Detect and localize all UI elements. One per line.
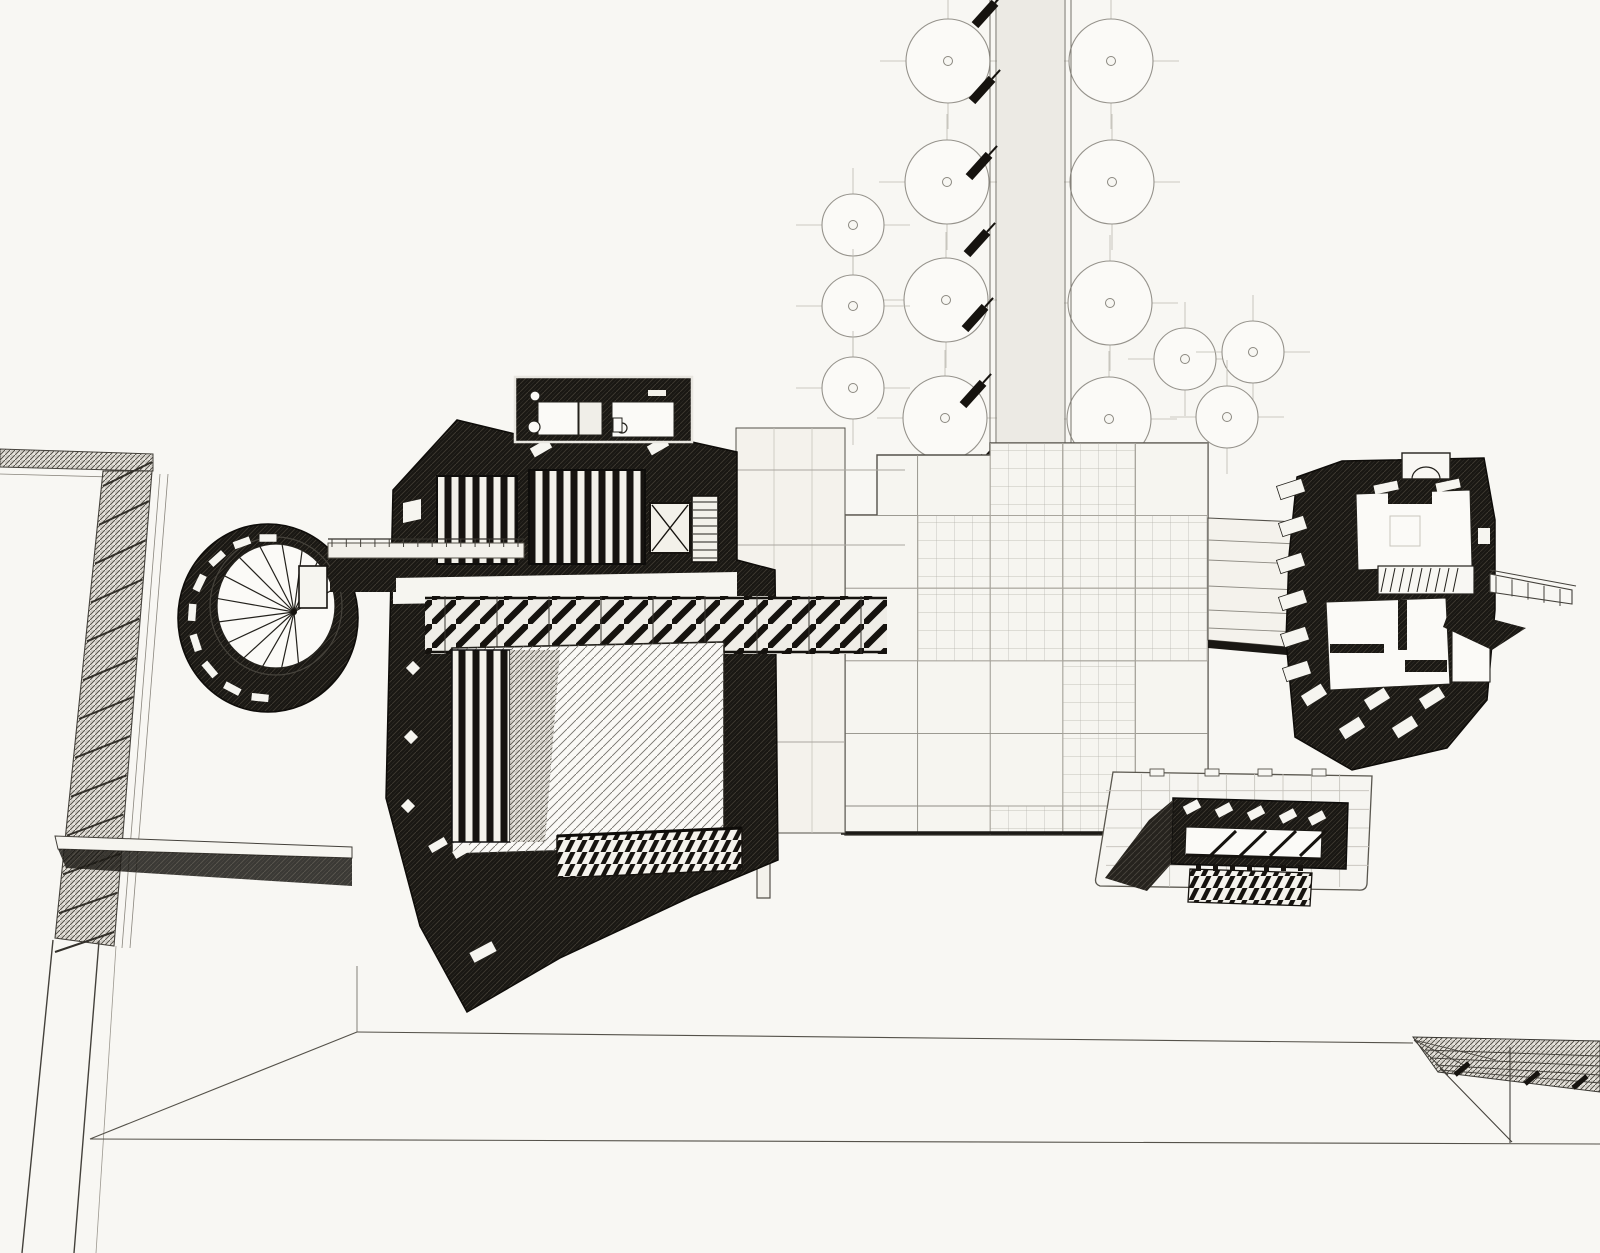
site-plan-drawing — [0, 0, 1600, 1253]
paved-cell — [1063, 661, 1136, 734]
louvre-room-east — [529, 470, 645, 564]
rooftop-rooms — [515, 377, 692, 442]
room-west-bed — [538, 402, 578, 435]
clerestory-slit — [648, 390, 666, 396]
tower-landing — [299, 566, 327, 608]
paved-cell — [990, 443, 1063, 516]
tree-trunk — [1106, 299, 1115, 308]
scanned-drawing-page — [0, 0, 1600, 1253]
east-edge-slot — [1478, 528, 1490, 544]
south-building — [1096, 769, 1373, 906]
deck-post — [1196, 865, 1201, 871]
tree-trunk — [1249, 348, 1258, 357]
tree-trunk — [849, 384, 858, 393]
southeast-deck — [557, 828, 742, 878]
mid-partition-a — [1330, 644, 1384, 653]
deck-post — [1264, 865, 1269, 871]
paved-cell — [918, 588, 991, 661]
room-west-closet — [579, 402, 602, 435]
tower-slot-glass — [260, 534, 277, 542]
paved-cell — [1063, 588, 1136, 661]
bridge-underside — [330, 556, 396, 592]
tree-trunk — [1108, 178, 1117, 187]
fixture-unit — [613, 418, 622, 432]
paved-cell — [918, 516, 991, 589]
platform-tick — [1150, 769, 1164, 776]
deck-post — [1213, 865, 1218, 871]
paved-cell — [1063, 516, 1136, 589]
courtyard-louvre-wall — [452, 650, 510, 842]
tree-trunk — [943, 178, 952, 187]
platform-tick — [1312, 769, 1326, 776]
hall-notch — [1388, 491, 1432, 504]
fixture-wc — [528, 421, 540, 433]
deck-post — [1247, 865, 1252, 871]
courtyard — [452, 642, 724, 854]
tree-trunk — [1107, 57, 1116, 66]
tower-slot-glass — [188, 604, 197, 621]
paved-cell — [1063, 443, 1136, 516]
stair-upper — [692, 496, 718, 562]
deck-post — [1230, 865, 1235, 871]
tree-trunk — [941, 414, 950, 423]
entry-canopy — [1402, 453, 1450, 479]
tree-trunk — [1223, 413, 1232, 422]
tree-trunk — [942, 296, 951, 305]
south-deck-rungs — [1188, 869, 1312, 906]
tree-trunk — [944, 57, 953, 66]
tree-trunk — [1181, 355, 1190, 364]
paved-cell — [1135, 516, 1208, 589]
deck-post — [1298, 865, 1303, 871]
stair-newel — [291, 609, 297, 615]
paved-cell — [990, 516, 1063, 589]
mid-partition-b — [1398, 600, 1407, 650]
paved-cell — [990, 588, 1063, 661]
platform-tick — [1258, 769, 1272, 776]
road-surface — [997, 0, 1064, 452]
mid-partition-c — [1405, 660, 1447, 672]
deck-post — [1281, 865, 1286, 871]
tree-trunk — [849, 221, 858, 230]
fixture-basin — [530, 391, 540, 401]
wing-window — [403, 499, 421, 523]
platform-tick — [1205, 769, 1219, 776]
road-allee — [990, 0, 1071, 452]
tower-slot — [188, 604, 197, 621]
tree-trunk — [1105, 415, 1114, 424]
bridge-deck — [328, 543, 524, 558]
paved-cell — [1135, 588, 1208, 661]
tower-slot — [260, 534, 277, 542]
tree-trunk — [849, 302, 858, 311]
